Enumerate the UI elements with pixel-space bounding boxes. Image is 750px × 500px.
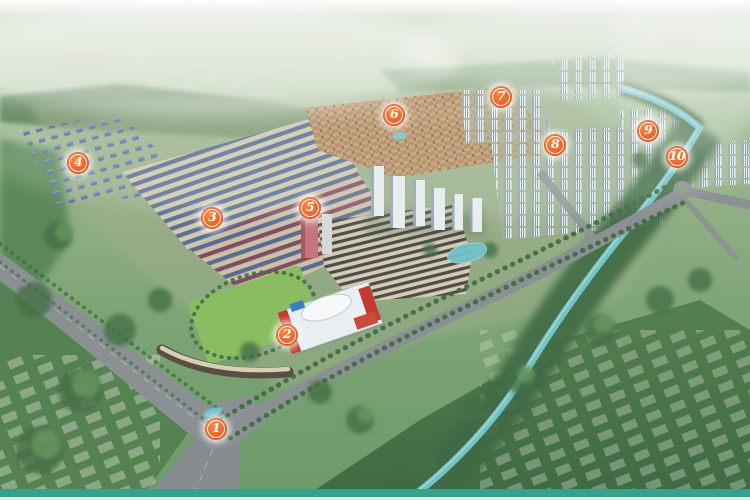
map-marker-4[interactable]: 4 bbox=[67, 152, 89, 174]
marker-number: 9 bbox=[644, 124, 652, 137]
aerial-masterplan-view: 12345678910 bbox=[0, 0, 750, 500]
map-marker-6[interactable]: 6 bbox=[383, 104, 405, 126]
map-marker-5[interactable]: 5 bbox=[299, 197, 321, 219]
marker-number: 1 bbox=[212, 422, 220, 435]
marker-number: 7 bbox=[497, 90, 505, 103]
map-marker-1[interactable]: 1 bbox=[205, 418, 227, 440]
map-marker-8[interactable]: 8 bbox=[544, 134, 566, 156]
map-marker-3[interactable]: 3 bbox=[201, 207, 223, 229]
marker-number: 8 bbox=[551, 138, 559, 151]
map-marker-2[interactable]: 2 bbox=[276, 324, 298, 346]
marker-number: 10 bbox=[669, 150, 685, 163]
footer-accent-bar bbox=[0, 489, 750, 497]
map-marker-10[interactable]: 10 bbox=[666, 146, 688, 168]
marker-number: 6 bbox=[390, 108, 398, 121]
marker-number: 3 bbox=[208, 211, 216, 224]
markers-layer: 12345678910 bbox=[0, 0, 750, 500]
map-marker-7[interactable]: 7 bbox=[490, 86, 512, 108]
marker-number: 5 bbox=[306, 201, 314, 214]
marker-number: 2 bbox=[283, 328, 291, 341]
marker-number: 4 bbox=[74, 156, 82, 169]
map-marker-9[interactable]: 9 bbox=[637, 120, 659, 142]
